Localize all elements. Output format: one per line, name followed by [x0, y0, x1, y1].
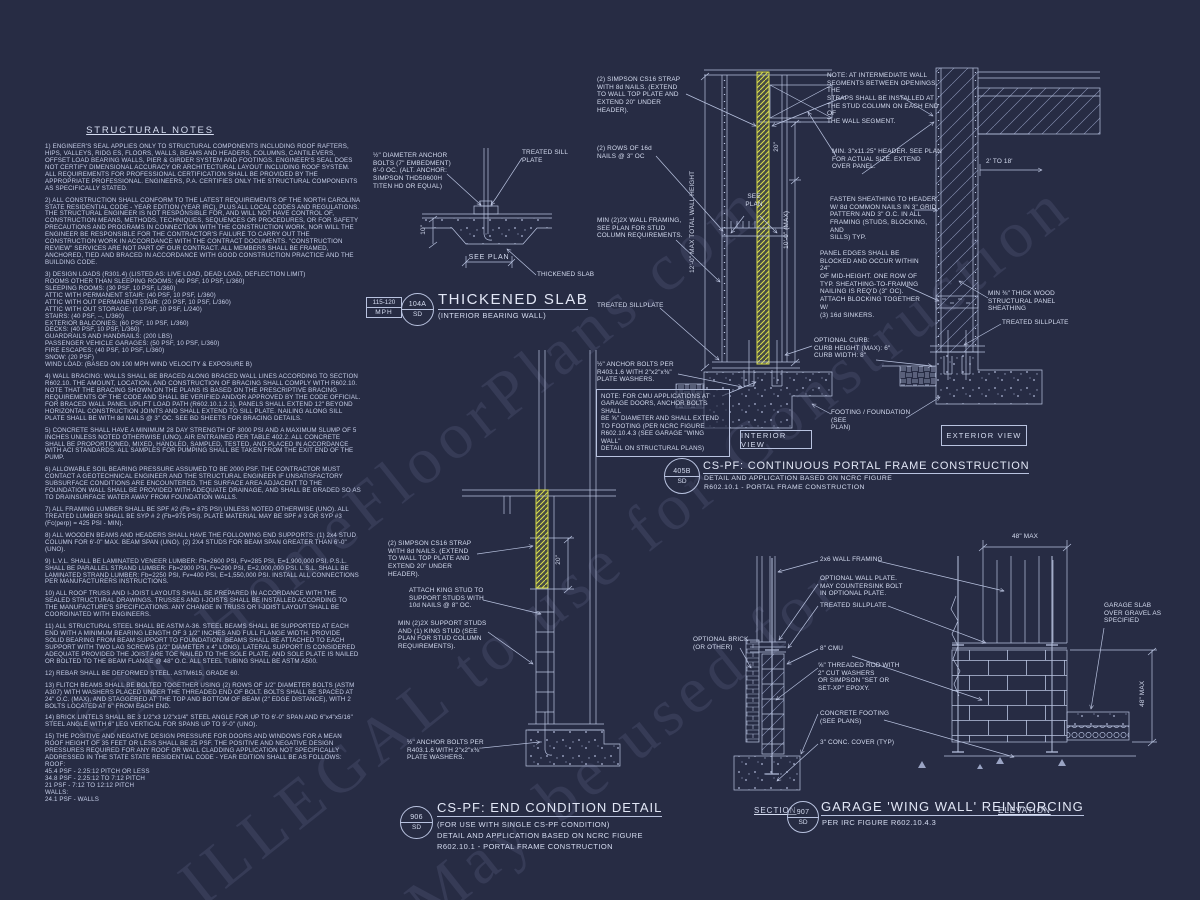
detail-subtitle1-portal-frame: DETAIL AND APPLICATION BASED ON NCRC FIG…	[704, 475, 892, 482]
label-treated-sillplate-wing: TREATED SILLPLATE	[820, 602, 887, 610]
wind-rating-badge: 115-120 MPH	[366, 297, 402, 318]
note-intermediate-wall: NOTE: AT INTERMEDIATE WALL SEGMENTS BETW…	[827, 72, 945, 126]
detail-subtitle-thickened-slab: (INTERIOR BEARING WALL)	[438, 311, 546, 320]
detail-title-portal-frame: CS-PF: CONTINUOUS PORTAL FRAME CONSTRUCT…	[703, 460, 1029, 474]
detail-badge-id: 405B	[665, 459, 699, 477]
detail-subtitle-wing-wall: PER IRC FIGURE R602.10.4.3	[822, 818, 936, 827]
detail-badge-discipline: SD	[665, 477, 699, 494]
note-paragraph: 1) ENGINEER'S SEAL APPLIES ONLY TO STRUC…	[45, 144, 361, 193]
detail-badge-discipline: SD	[401, 823, 432, 838]
dim-slab-depth: 10"	[420, 221, 428, 239]
label-panel-sheathing: MIN ⅜" THICK WOOD STRUCTURAL PANEL SHEAT…	[988, 290, 1062, 313]
label-garage-slab: GARAGE SLAB OVER GRAVEL AS SPECIFIED	[1104, 602, 1168, 625]
detail-badge-discipline: SD	[402, 310, 433, 325]
wind-rating-unit: MPH	[367, 308, 401, 317]
label-anchor-bolts-end: ½" ANCHOR BOLTS PER R403.1.6 WITH 2"x2"x…	[407, 739, 495, 762]
note-paragraph: 14) BRICK LINTELS SHALL BE 3 1/2"x3 1/2"…	[45, 715, 361, 729]
label-min-header: MIN. 3"x11.25" HEADER. SEE PLAN FOR ACTU…	[832, 148, 946, 171]
detail-title-thickened-slab: THICKENED SLAB	[438, 291, 588, 310]
detail-badge-104a: 104A SD	[401, 293, 434, 326]
note-paragraph: 2) ALL CONSTRUCTION SHALL CONFORM TO THE…	[45, 198, 361, 267]
label-simpson-strap-end: (2) SIMPSON CS16 STRAP WITH 8d NAILS. (E…	[388, 540, 480, 578]
label-optional-brick: OPTIONAL BRICK (OR OTHER)	[693, 636, 755, 651]
label-simpson-strap: (2) SIMPSON CS16 STRAP WITH 8d NAILS. (E…	[597, 76, 687, 114]
note-paragraph: 5) CONCRETE SHALL HAVE A MINIMUM 28 DAY …	[45, 428, 361, 463]
note-paragraph: 11) ALL STRUCTURAL STEEL SHALL BE ASTM A…	[45, 624, 361, 666]
detail-title-end-condition: CS-PF: END CONDITION DETAIL	[437, 800, 662, 817]
wind-rating-speed: 115-120	[367, 298, 401, 308]
label-optional-wall-plate: OPTIONAL WALL PLATE. MAY COUNTERSINK BOL…	[820, 575, 910, 598]
dim-total-wall-height: 12'-0" MAX TOTAL WALL HEIGHT	[689, 147, 697, 297]
label-treated-sillplate-interior: TREATED SILLPLATE	[597, 302, 664, 310]
note-paragraph: 7) ALL FRAMING LUMBER SHALL BE SPF #2 (F…	[45, 507, 361, 528]
view-label-exterior-text: EXTERIOR VIEW	[946, 431, 1021, 440]
label-wall-framing: 2x6 WALL FRAMING	[820, 556, 883, 564]
note-paragraph: 13) FLITCH BEAMS SHALL BE BOLTED TOGETHE…	[45, 683, 361, 711]
label-fasten-sheathing: FASTEN SHEATHING TO HEADER W/ 8d COMMON …	[830, 196, 940, 242]
note-paragraph: 9) L.V.L. SHALL BE LAMINATED VENEER LUMB…	[45, 559, 361, 587]
detail-subtitle2-portal-frame: R602.10.1 - PORTAL FRAME CONSTRUCTION	[704, 484, 865, 491]
detail-subtitle3-end-condition: R602.10.1 - PORTAL FRAME CONSTRUCTION	[437, 842, 613, 851]
note-paragraph: 10) ALL ROOF TRUSS AND I-JOIST LAYOUTS S…	[45, 591, 361, 619]
label-concrete-footing: CONCRETE FOOTING (SEE PLANS)	[820, 710, 892, 725]
dim-20in-strap: 20"	[773, 136, 781, 158]
detail-badge-id: 907	[788, 802, 818, 818]
label-anchor-bolts: ½" DIAMETER ANCHOR BOLTS (7" EMBEDMENT) …	[373, 152, 455, 190]
label-min-support-studs: MIN (2)2X SUPPORT STUDS AND (1) KING STU…	[398, 620, 492, 651]
detail-badge-907: 907 SD	[787, 801, 819, 833]
detail-badge-discipline: SD	[788, 818, 818, 833]
label-treated-sillplate-exterior: TREATED SILLPLATE	[1002, 319, 1069, 327]
dim-see-plan: SEE PLAN	[460, 254, 518, 262]
note-paragraph: 6) ALLOWABLE SOIL BEARING PRESSURE ASSUM…	[45, 467, 361, 502]
note-paragraph: 8) ALL WOODEN BEAMS AND HEADERS SHALL HA…	[45, 533, 361, 554]
dim-2-to-18: 2' TO 18'	[986, 158, 1013, 166]
note-paragraph: 12) REBAR SHALL BE DEFORMED STEEL. ASTM6…	[45, 671, 361, 678]
wing-wall-elevation-drawing	[918, 540, 1157, 769]
detail-badge-id: 906	[401, 807, 432, 823]
detail-badge-405b: 405B SD	[664, 458, 700, 494]
blueprint-sheet: ©MyHomeFloorPlans.com ILLEGAL to use for…	[0, 0, 1200, 900]
label-optional-curb: OPTIONAL CURB: CURB HEIGHT (MAX): 6" CUR…	[814, 337, 896, 360]
dim-48-max-right: 48" MAX	[1139, 673, 1147, 715]
detail-badge-id: 104A	[402, 294, 433, 310]
structural-notes-title: STRUCTURAL NOTES	[45, 125, 255, 136]
label-treated-sill-plate: TREATED SILL PLATE	[522, 149, 574, 164]
note-paragraph: 4) WALL BRACING: WALLS SHALL BE BRACED A…	[45, 374, 361, 423]
note-paragraph: 3) DESIGN LOADS (R301.4) (LISTED AS: LIV…	[45, 272, 361, 369]
label-concrete-cover: 3" CONC. COVER (TYP)	[820, 739, 894, 747]
label-cmu: 8" CMU	[820, 645, 843, 653]
dim-see-plan-stud: SEE PLAN	[740, 193, 768, 208]
detail-title-wing-wall: GARAGE 'WING WALL' REINFORCING	[821, 799, 1084, 816]
note-paragraph: 15) THE POSITIVE AND NEGATIVE DESIGN PRE…	[45, 734, 361, 803]
structural-notes: 1) ENGINEER'S SEAL APPLIES ONLY TO STRUC…	[45, 144, 361, 809]
view-label-interior-text: INTERIOR VIEW	[741, 431, 811, 449]
dim-48-max-top: 48" MAX	[993, 533, 1057, 541]
detail-subtitle2-end-condition: DETAIL AND APPLICATION BASED ON NCRC FIG…	[437, 831, 643, 840]
label-min-wall-framing: MIN (2)2X WALL FRAMING, SEE PLAN FOR STU…	[597, 217, 691, 240]
label-anchor-bolts-interior: ½" ANCHOR BOLTS PER R403.1.6 WITH 2"x2"x…	[597, 361, 685, 384]
label-attach-king-stud: ATTACH KING STUD TO SUPPORT STUDS WITH 1…	[409, 587, 493, 610]
detail-subtitle1-end-condition: (FOR USE WITH SINGLE CS-PF CONDITION)	[437, 820, 610, 829]
label-thickened-slab: THICKENED SLAB	[537, 271, 594, 279]
label-footing-foundation: FOOTING / FOUNDATION (SEE PLAN)	[831, 409, 925, 432]
view-label-exterior: EXTERIOR VIEW	[941, 425, 1027, 446]
dim-10ft-max: 10'-0" (MAX)	[783, 195, 791, 265]
label-16d-nails: (2) ROWS OF 16d NAILS @ 3" OC	[597, 145, 669, 160]
label-threaded-rod: ⅝" THREADED ROD WITH 2" CUT WASHERS OR S…	[818, 662, 912, 693]
detail-badge-906: 906 SD	[400, 806, 433, 839]
label-panel-edges: PANEL EDGES SHALL BE BLOCKED AND OCCUR W…	[820, 250, 924, 319]
dim-20in-end: 20"	[555, 549, 563, 571]
view-label-interior: INTERIOR VIEW	[740, 430, 812, 449]
note-cmu-applications: NOTE: FOR CMU APPLICATIONS AT GARAGE DOO…	[596, 389, 730, 457]
